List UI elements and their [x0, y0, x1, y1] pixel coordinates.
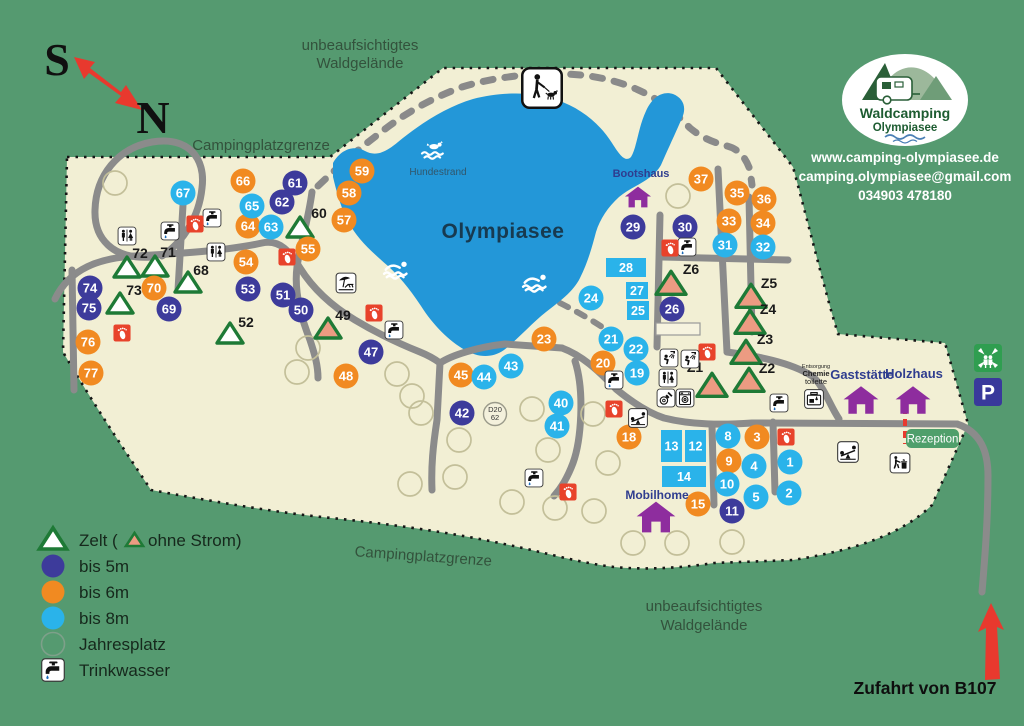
- legend-8m-swatch: [42, 607, 65, 630]
- tent-label: Z3: [757, 331, 774, 347]
- site-marker: 5: [744, 485, 769, 510]
- contact-email: camping.olympiasee@gmail.com: [799, 169, 1012, 184]
- logo-name-2: Olympiasee: [873, 122, 938, 134]
- site-number: 10: [720, 477, 734, 492]
- site-marker: 50: [289, 298, 314, 323]
- footpath-icon: [605, 400, 622, 417]
- compass-south: S: [44, 34, 70, 85]
- site-marker: 30: [673, 215, 698, 240]
- site-marker: 35: [725, 181, 750, 206]
- site-number: 12: [689, 440, 703, 454]
- footpath-icon: [365, 304, 382, 321]
- site-marker: 19: [625, 361, 650, 386]
- site-marker: 24: [579, 286, 604, 311]
- site-marker: 53: [236, 277, 261, 302]
- building-label: Holzhaus: [885, 366, 943, 381]
- contact-phone: 034903 478180: [858, 188, 952, 203]
- site-number: 5: [752, 490, 759, 505]
- site-marker: 1: [778, 450, 803, 475]
- tent-label: 68: [193, 262, 209, 278]
- site-marker: 47: [359, 340, 384, 365]
- forest-label-top: unbeaufsichtigtes: [302, 37, 419, 54]
- site-rect: 14: [662, 466, 706, 487]
- svg-text:Rezeption: Rezeption: [907, 434, 959, 446]
- site-number: 20: [596, 356, 610, 371]
- tent-label: 71: [160, 244, 176, 260]
- footpath-icon: [113, 324, 130, 341]
- shower-icon: [681, 350, 699, 368]
- site-number: 67: [176, 186, 190, 201]
- entrance-label: Zufahrt von B107: [854, 678, 997, 698]
- toilets-icon: [659, 369, 677, 387]
- site-marker: 37: [689, 167, 714, 192]
- legend-bis8: bis 8m: [79, 609, 129, 628]
- site-marker: 2: [777, 481, 802, 506]
- site-marker: 18: [617, 425, 642, 450]
- site-number: 2: [785, 486, 792, 501]
- logo-name-1: Waldcamping: [860, 105, 951, 121]
- washing-machine-icon: [676, 389, 694, 407]
- site-number: 55: [301, 242, 315, 257]
- tent-label: 52: [238, 314, 254, 330]
- site-marker: 26: [660, 297, 685, 322]
- site-number: 40: [554, 396, 568, 411]
- toilets-icon: [207, 243, 225, 261]
- legend-trinkwasser: Trinkwasser: [79, 661, 170, 680]
- site-marker: 48: [334, 364, 359, 389]
- site-marker: 41: [545, 414, 570, 439]
- site-number: 47: [364, 345, 378, 360]
- site-number: 34: [756, 216, 771, 231]
- site-marker: 9: [717, 449, 742, 474]
- tent-label: 72: [132, 245, 148, 261]
- dog-walking-icon: [522, 68, 561, 107]
- site-marker: 57: [332, 208, 357, 233]
- road-marker-d20: D20 62: [484, 403, 507, 426]
- site-number: 30: [678, 220, 692, 235]
- water-tap-icon: [770, 394, 788, 412]
- assembly-point-icon: [974, 344, 1002, 372]
- contact-website: www.camping-olympiasee.de: [810, 150, 999, 165]
- dishwashing-icon: [657, 389, 675, 407]
- site-marker: 77: [79, 361, 104, 386]
- brand-logo: Waldcamping Olympiasee: [842, 54, 968, 146]
- site-marker: 21: [599, 327, 624, 352]
- building-label: Bootshaus: [613, 168, 670, 180]
- site-number: 43: [504, 359, 518, 374]
- site-marker: 8: [716, 424, 741, 449]
- site-marker: 4: [742, 454, 767, 479]
- site-number: 76: [81, 335, 95, 350]
- tent-label: 73: [126, 282, 142, 298]
- footpath-icon: [698, 343, 715, 360]
- site-number: 28: [619, 261, 633, 275]
- site-number: 51: [276, 288, 290, 303]
- site-marker: 3: [745, 425, 770, 450]
- site-number: 53: [241, 282, 255, 297]
- site-marker: 32: [751, 235, 776, 260]
- site-marker: 23: [532, 327, 557, 352]
- site-number: 31: [718, 238, 732, 253]
- legend-zelt-prefix: Zelt (: [79, 531, 118, 550]
- site-rect: 25: [627, 301, 649, 320]
- svg-text:P: P: [981, 382, 995, 405]
- site-number: 61: [288, 176, 302, 191]
- water-tap-icon: [678, 238, 696, 256]
- tent-label: Z6: [683, 261, 700, 277]
- building-label: Mobilhome: [625, 488, 689, 502]
- site-number: 37: [694, 172, 708, 187]
- water-tap-icon: [42, 659, 65, 682]
- site-number: 66: [236, 174, 250, 189]
- site-marker: 69: [157, 297, 182, 322]
- beach-icon: [336, 273, 356, 293]
- dog-beach-label: Hundestrand: [409, 167, 466, 178]
- site-marker: 45: [449, 363, 474, 388]
- site-number: 33: [722, 214, 736, 229]
- site-marker: 22: [624, 337, 649, 362]
- site-number: 1: [786, 455, 793, 470]
- building-outline: [656, 323, 700, 335]
- site-number: 21: [604, 332, 618, 347]
- site-number: 15: [691, 497, 705, 512]
- site-number: 29: [626, 220, 640, 235]
- campground-map: 282725131214 72716873605249Z6Z5Z4Z3Z2Z1 …: [0, 0, 1024, 726]
- site-number: 42: [455, 406, 469, 421]
- site-marker: 36: [752, 187, 777, 212]
- site-number: 70: [147, 281, 161, 296]
- site-marker: 55: [296, 237, 321, 262]
- site-marker: 29: [621, 215, 646, 240]
- waste-disposal-icon: [890, 453, 910, 473]
- tent-label: Z2: [759, 360, 776, 376]
- site-marker: 65: [240, 194, 265, 219]
- water-tap-icon: [385, 321, 403, 339]
- chemical-toilet-icon: [805, 390, 824, 409]
- site-number: 63: [264, 220, 278, 235]
- legend-trinkwasser-icon: [42, 659, 65, 682]
- site-number: 32: [756, 240, 770, 255]
- tent-label: 60: [311, 205, 327, 221]
- site-number: 57: [337, 213, 351, 228]
- site-marker: 40: [549, 391, 574, 416]
- site-marker: 34: [751, 211, 776, 236]
- site-number: 44: [477, 370, 492, 385]
- footpath-icon: [278, 248, 295, 265]
- site-marker: 63: [259, 215, 284, 240]
- site-number: 19: [630, 366, 644, 381]
- site-number: 23: [537, 332, 551, 347]
- site-number: 69: [162, 302, 176, 317]
- site-marker: 31: [713, 233, 738, 258]
- tent-label: Z4: [760, 301, 777, 317]
- site-number: 48: [339, 369, 353, 384]
- playground-icon: [629, 409, 648, 428]
- road-marker-line2: 62: [491, 413, 499, 422]
- legend-bis5: bis 5m: [79, 557, 129, 576]
- site-number: 13: [665, 440, 679, 454]
- lake-name: Olympiasee: [442, 220, 565, 243]
- site-number: 25: [631, 304, 645, 318]
- site-number: 27: [630, 284, 644, 298]
- disposal-station-label: Entsorgung Chemie toilette: [802, 364, 830, 386]
- site-rect: 27: [626, 282, 648, 299]
- site-marker: 66: [231, 169, 256, 194]
- site-marker: 11: [720, 499, 745, 524]
- site-marker: 62: [270, 190, 295, 215]
- site-number: 41: [550, 419, 564, 434]
- site-number: 4: [750, 459, 758, 474]
- playground-icon: [838, 442, 859, 463]
- site-marker: 67: [171, 181, 196, 206]
- site-number: 18: [622, 430, 636, 445]
- site-number: 45: [454, 368, 468, 383]
- site-number: 58: [342, 186, 356, 201]
- site-rect: 12: [685, 430, 706, 462]
- legend-bis6: bis 6m: [79, 583, 129, 602]
- site-number: 26: [665, 302, 679, 317]
- toilets-icon: [118, 227, 136, 245]
- site-number: 64: [241, 219, 256, 234]
- water-tap-icon: [161, 222, 179, 240]
- site-number: 8: [724, 429, 731, 444]
- parking-icon: P: [974, 378, 1002, 406]
- compass-north: N: [136, 92, 169, 143]
- water-tap-icon: [605, 371, 623, 389]
- boundary-label-top: Campingplatzgrenze: [192, 137, 330, 154]
- site-marker: 42: [450, 401, 475, 426]
- site-marker: 59: [350, 159, 375, 184]
- site-number: 24: [584, 291, 599, 306]
- site-marker: 76: [76, 330, 101, 355]
- site-marker: 58: [337, 181, 362, 206]
- site-number: 62: [275, 195, 289, 210]
- reception-badge: Rezeption: [906, 429, 959, 448]
- site-number: 35: [730, 186, 744, 201]
- legend-jahresplatz: Jahresplatz: [79, 635, 166, 654]
- footpath-icon: [661, 239, 678, 256]
- site-marker: 70: [142, 276, 167, 301]
- site-number: 9: [725, 454, 732, 469]
- site-marker: 75: [77, 296, 102, 321]
- waldcamping-map-screenshot: 282725131214 72716873605249Z6Z5Z4Z3Z2Z1 …: [0, 0, 1024, 726]
- footpath-icon: [777, 428, 794, 445]
- site-marker: 10: [715, 472, 740, 497]
- legend-zelt-suffix: ohne Strom): [148, 531, 242, 550]
- site-number: 77: [84, 366, 98, 381]
- site-number: 50: [294, 303, 308, 318]
- site-number: 65: [245, 199, 259, 214]
- footpath-icon: [559, 483, 576, 500]
- site-number: 59: [355, 164, 369, 179]
- site-number: 22: [629, 342, 643, 357]
- water-tap-icon: [203, 209, 221, 227]
- water-tap-icon: [525, 469, 543, 487]
- legend-5m-swatch: [42, 555, 65, 578]
- tent-label: Z5: [761, 275, 778, 291]
- site-marker: 43: [499, 354, 524, 379]
- site-number: 54: [239, 255, 254, 270]
- svg-text:Waldgelände: Waldgelände: [316, 55, 403, 72]
- site-marker: 44: [472, 365, 497, 390]
- site-number: 36: [757, 192, 771, 207]
- site-rect: 13: [661, 430, 682, 462]
- site-number: 11: [725, 504, 739, 519]
- site-marker: 15: [686, 492, 711, 517]
- site-number: 14: [677, 470, 691, 484]
- site-number: 75: [82, 301, 96, 316]
- footpath-icon: [186, 215, 203, 232]
- site-marker: 54: [234, 250, 259, 275]
- svg-text:Waldgelände: Waldgelände: [660, 617, 747, 634]
- site-rect: 28: [606, 258, 646, 277]
- site-number: 74: [83, 281, 98, 296]
- shower-icon: [660, 349, 678, 367]
- tent-label: 49: [335, 307, 351, 323]
- svg-text:toilette: toilette: [805, 377, 827, 386]
- site-number: 3: [753, 430, 760, 445]
- forest-label-bottom: unbeaufsichtigtes: [646, 598, 763, 615]
- legend-6m-swatch: [42, 581, 65, 604]
- site-marker: 33: [717, 209, 742, 234]
